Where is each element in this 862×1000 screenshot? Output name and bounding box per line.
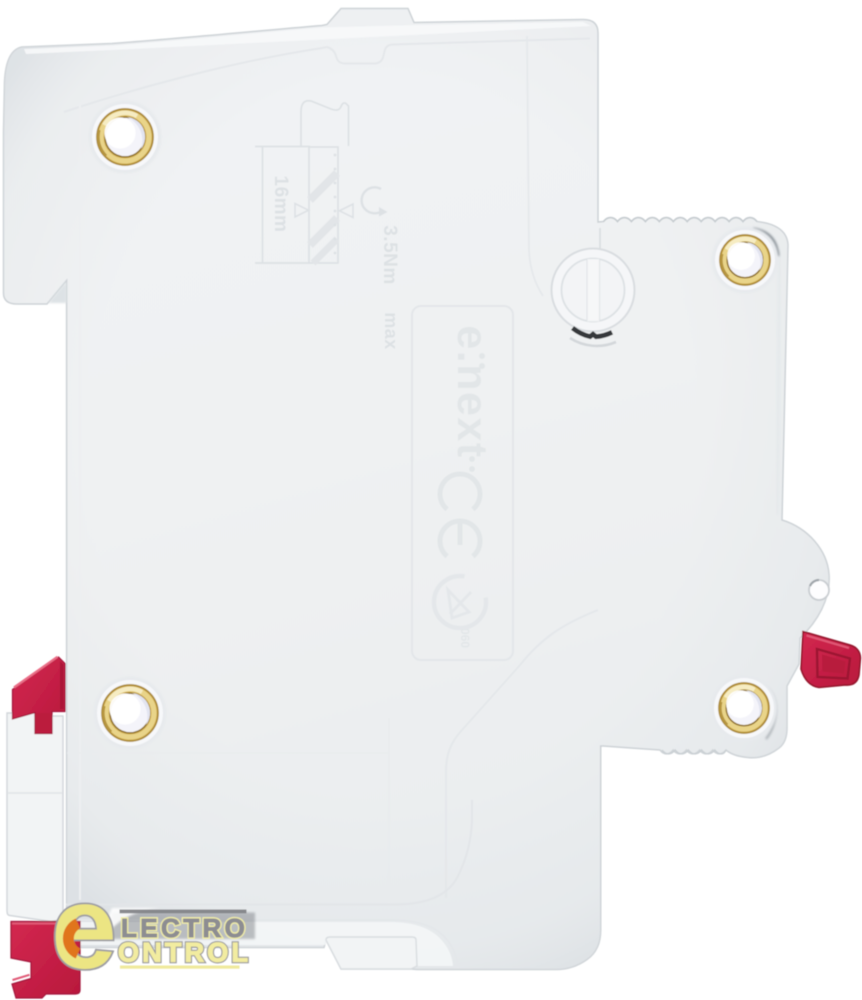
svg-text:060: 060 xyxy=(458,628,472,648)
svg-text:16mm: 16mm xyxy=(270,176,291,233)
svg-text:e.next: e.next xyxy=(448,325,496,458)
svg-text:max: max xyxy=(381,312,401,350)
svg-text:e: e xyxy=(51,862,117,994)
svg-text:3.5Nm: 3.5Nm xyxy=(379,225,400,285)
svg-text:ONTROL: ONTROL xyxy=(118,938,251,968)
